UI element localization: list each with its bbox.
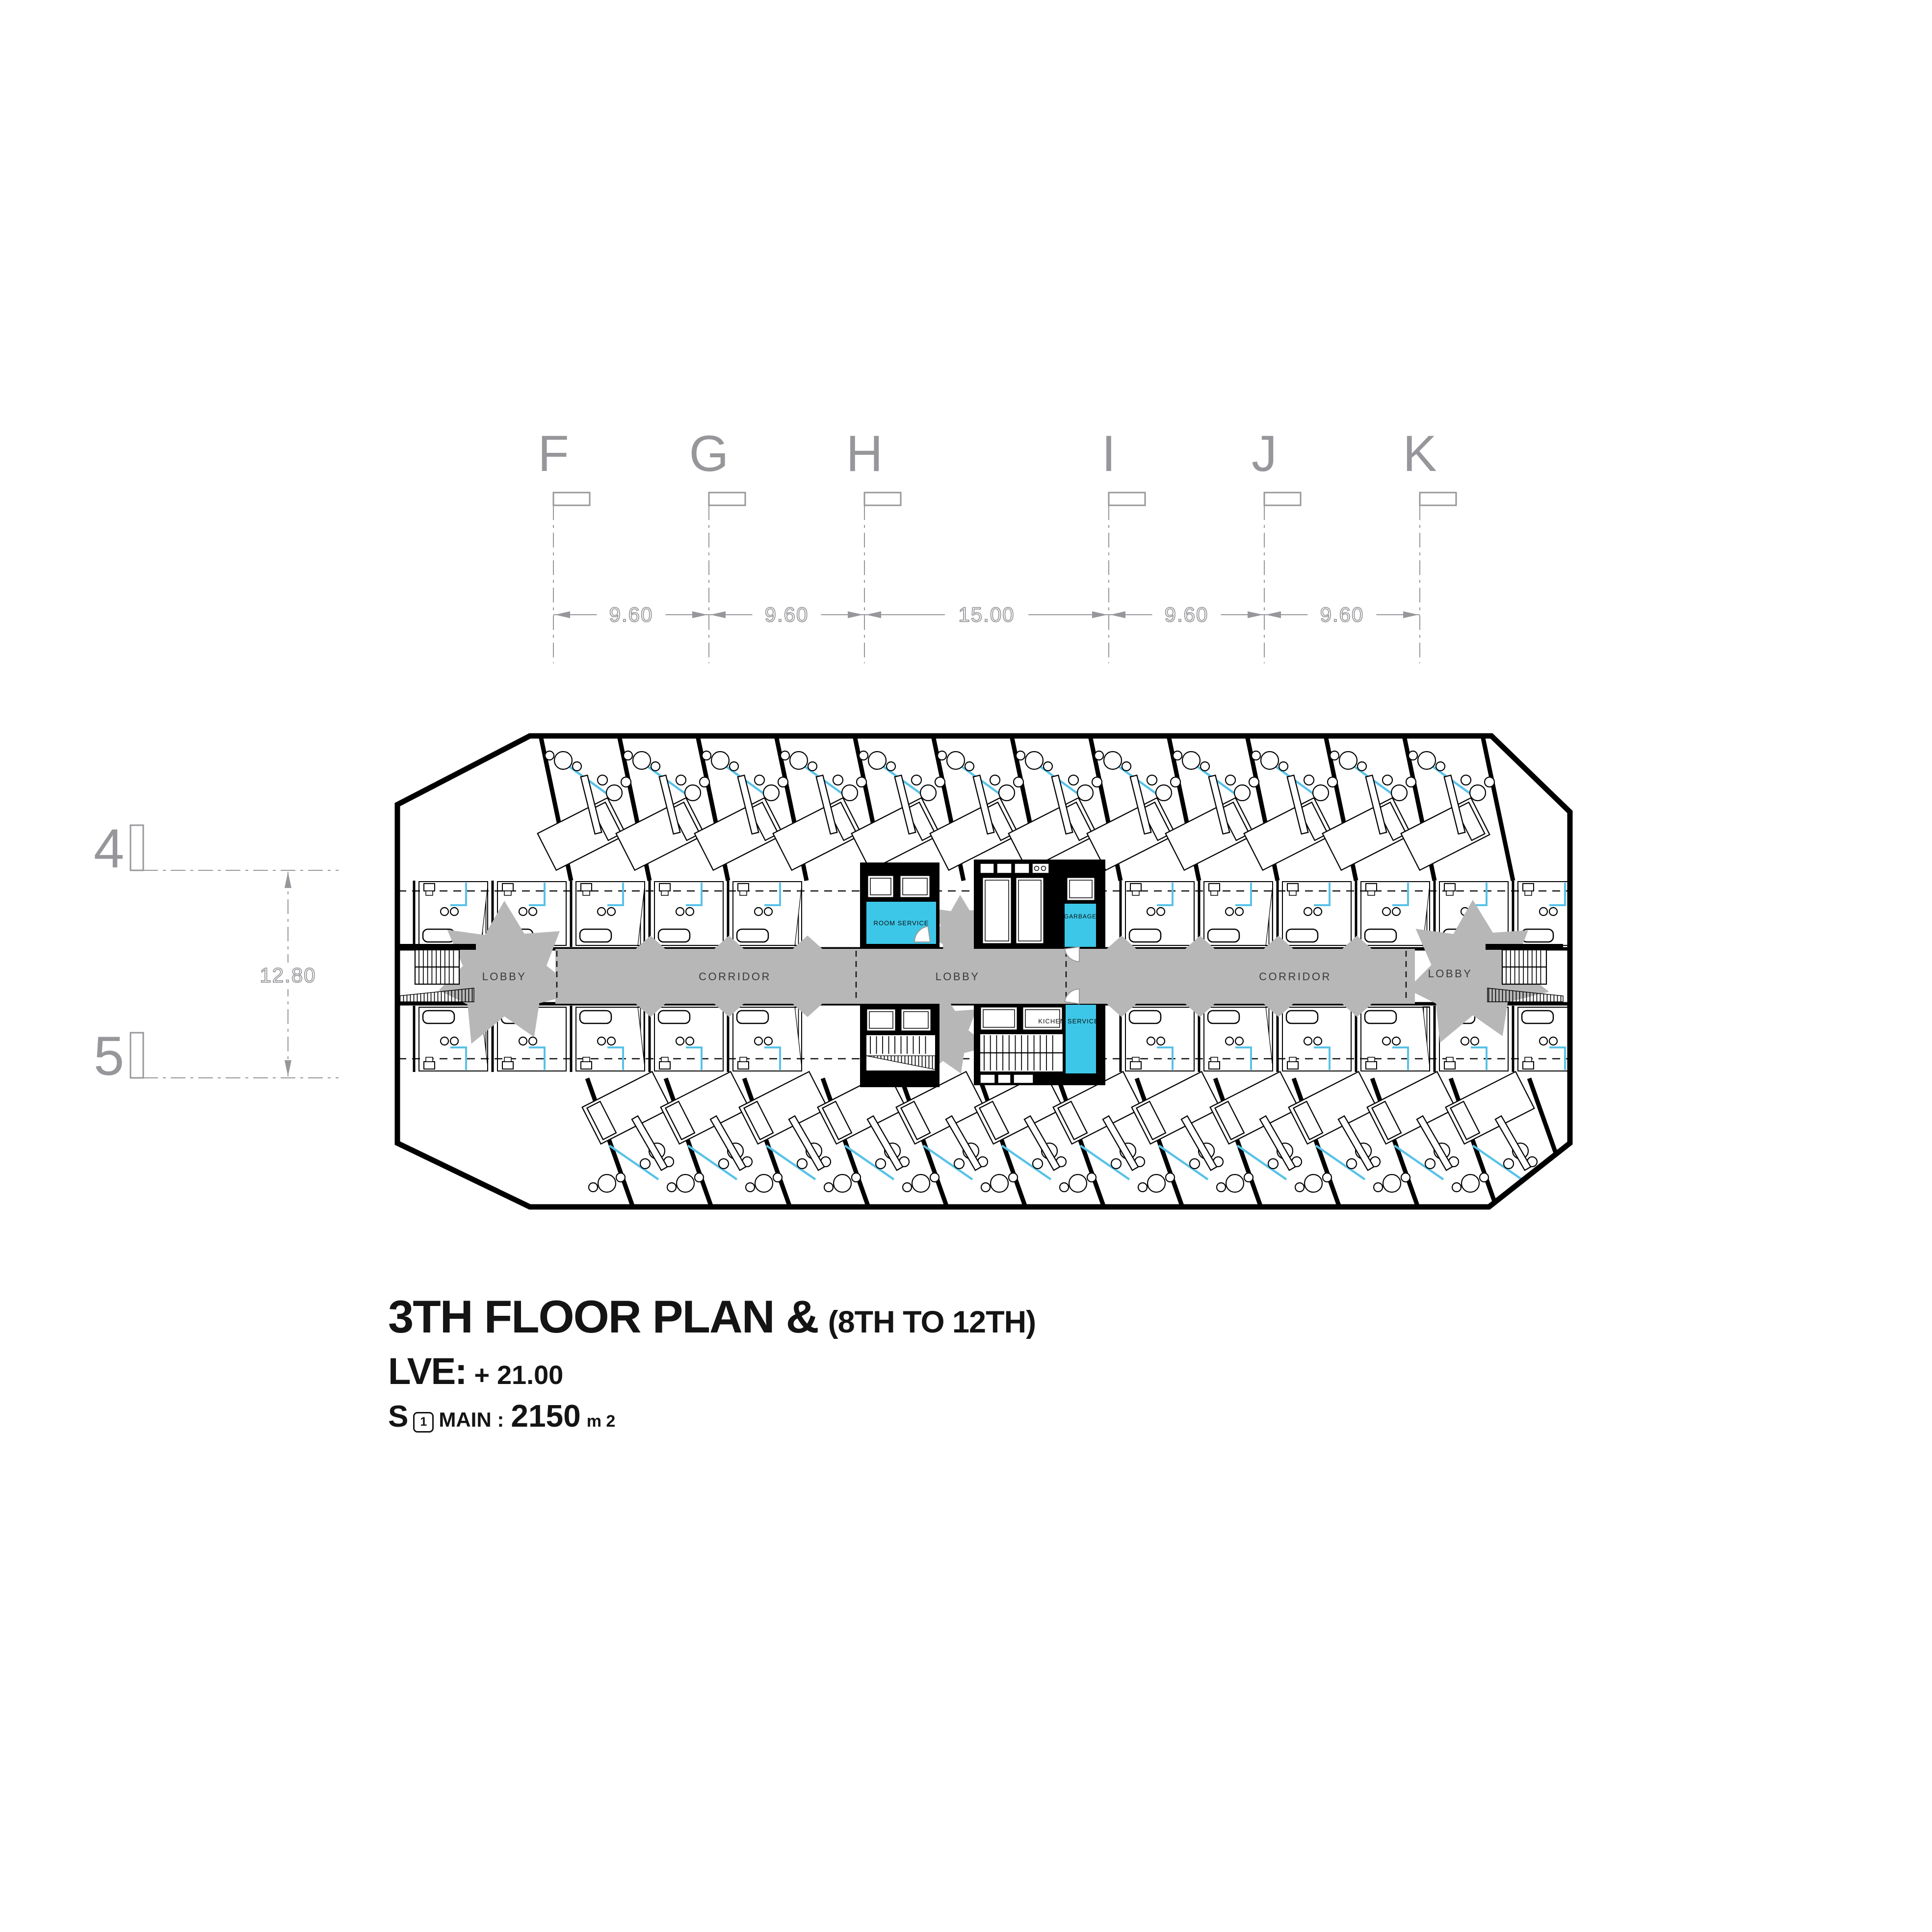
dimension-arrow	[1266, 611, 1281, 618]
sink	[1540, 1037, 1547, 1045]
bathroom-pod	[1199, 881, 1273, 947]
guest-room	[1323, 751, 1416, 870]
chair	[778, 777, 788, 787]
grid-column-letter-G: G	[689, 425, 729, 482]
table	[868, 752, 886, 769]
sink	[1314, 1037, 1322, 1045]
toilet	[1130, 884, 1141, 891]
chair	[1452, 1183, 1461, 1192]
toilet	[1444, 1062, 1455, 1069]
bed	[1367, 1071, 1456, 1144]
counter	[1015, 863, 1029, 873]
chair	[1033, 1159, 1043, 1169]
toilet-seat	[1525, 1057, 1532, 1062]
sink	[1461, 1037, 1469, 1045]
chair	[903, 1183, 912, 1192]
toilet-seat	[504, 1057, 511, 1062]
guest-room	[975, 1071, 1066, 1192]
floor-plan-sheet: FGHIJK9.609.6015.009.609.604512.80LOBBYC…	[0, 0, 1932, 1932]
toilet-seat	[1368, 891, 1375, 895]
bed	[1323, 798, 1411, 870]
table	[1226, 1175, 1244, 1192]
bathtub	[1286, 929, 1318, 942]
bed	[1009, 798, 1097, 870]
chair	[1016, 751, 1025, 760]
table	[1305, 1175, 1322, 1192]
elevator-cell	[866, 1009, 896, 1031]
bathroom-pod	[650, 1006, 723, 1072]
sink	[1304, 908, 1312, 915]
chair	[1268, 1159, 1278, 1169]
guest-room	[1132, 1071, 1223, 1192]
guest-room	[1053, 1071, 1145, 1192]
elevator-cell	[982, 877, 1012, 944]
dimension-arrow	[1110, 611, 1125, 618]
chair	[685, 785, 701, 801]
grid-column-flag	[553, 493, 590, 505]
chair	[1166, 1173, 1175, 1182]
counter	[980, 1074, 995, 1083]
dimension-arrow	[1248, 611, 1263, 618]
chair	[1244, 1173, 1253, 1182]
guest-room	[739, 1071, 831, 1192]
chair	[1156, 785, 1172, 801]
shaft-hatch	[1266, 886, 1273, 946]
bed	[1132, 1071, 1221, 1144]
sink	[450, 908, 458, 915]
toilet	[1209, 884, 1220, 891]
toilet-seat	[583, 1057, 590, 1062]
bathtub	[1208, 929, 1239, 942]
chair	[773, 1173, 782, 1182]
bed	[582, 1071, 671, 1144]
sink	[598, 908, 605, 915]
chair	[808, 762, 817, 771]
chair	[1226, 775, 1235, 785]
dimension-arrow	[285, 872, 291, 888]
shower-partition	[1549, 883, 1565, 905]
chair	[1138, 1183, 1147, 1192]
toilet	[738, 1062, 749, 1069]
chair	[1087, 1173, 1096, 1182]
chair	[1069, 775, 1078, 785]
toilet-seat	[1289, 891, 1296, 895]
chair	[1044, 762, 1052, 771]
chair	[930, 1173, 939, 1182]
guest-room	[1166, 751, 1259, 870]
garbage-room	[1065, 904, 1096, 947]
table	[1069, 1175, 1087, 1192]
chair	[1249, 777, 1259, 787]
area-line: S 1 MAIN : 2150 m 2	[388, 1398, 1036, 1434]
table	[1148, 1175, 1165, 1192]
chair	[1217, 1183, 1226, 1192]
chair	[573, 762, 581, 771]
chair	[1014, 777, 1023, 787]
chair	[1009, 1173, 1018, 1182]
toilet	[1209, 1062, 1220, 1069]
toilet	[1444, 884, 1455, 891]
guest-room	[616, 751, 709, 870]
grid-column-flag	[1420, 493, 1456, 505]
chair	[859, 751, 868, 760]
toilet-seat	[1132, 1057, 1139, 1062]
sink	[1383, 908, 1390, 915]
sink	[519, 908, 527, 915]
area-index-box: 1	[413, 1412, 434, 1433]
shaft-hatch	[638, 886, 645, 946]
title-suffix: (8TH TO 12TH)	[828, 1305, 1036, 1340]
chair	[598, 775, 607, 785]
chair	[746, 1183, 755, 1192]
sink	[1392, 1037, 1400, 1045]
grid-column-flag	[709, 493, 745, 505]
sink	[607, 1037, 615, 1045]
bed	[739, 1071, 828, 1144]
toilet-seat	[1211, 1057, 1218, 1062]
bathroom-pod	[1121, 1006, 1194, 1072]
chair	[999, 785, 1015, 801]
elevator-cell	[900, 875, 930, 898]
chair	[1358, 762, 1366, 771]
toilet	[1523, 884, 1534, 891]
guest-room	[1401, 751, 1494, 870]
label-corridor-left: CORRIDOR	[699, 970, 771, 983]
chair	[1095, 751, 1103, 760]
guest-room	[1009, 751, 1102, 870]
sink	[676, 1037, 684, 1045]
bed	[773, 798, 862, 870]
chair	[1122, 762, 1131, 771]
chair	[912, 775, 921, 785]
chair	[640, 1159, 650, 1169]
chair	[755, 775, 764, 785]
sheet-title: 3TH FLOOR PLAN & (8TH TO 12TH)	[388, 1290, 1036, 1343]
grid-column-letter-H: H	[846, 425, 883, 482]
sink	[1226, 1037, 1233, 1045]
sink	[1471, 1037, 1479, 1045]
chair	[1313, 785, 1329, 801]
table	[1383, 1175, 1401, 1192]
guest-room	[852, 751, 945, 870]
chair	[1111, 1159, 1121, 1169]
chair	[852, 1173, 861, 1182]
shaft-hatch	[1423, 1007, 1430, 1067]
chair	[695, 1173, 704, 1182]
guest-room	[1087, 751, 1180, 870]
bed	[616, 798, 705, 870]
dimension-text: 9.60	[1165, 603, 1209, 626]
level-line: LVE: + 21.00	[388, 1350, 1036, 1393]
guest-room	[582, 1071, 674, 1192]
bathroom-pod	[728, 1006, 802, 1072]
chair	[1279, 762, 1288, 771]
sink	[755, 908, 762, 915]
shower-partition	[764, 883, 780, 905]
toilet-seat	[1132, 891, 1139, 895]
table	[912, 1175, 930, 1192]
chair	[1234, 785, 1250, 801]
title-main: 3TH FLOOR PLAN &	[388, 1290, 818, 1343]
table	[1182, 752, 1200, 769]
chair	[1436, 762, 1445, 771]
toilet	[659, 1062, 670, 1069]
label-garbage: GARBAGE	[1064, 913, 1097, 920]
dimension-text: 9.60	[609, 603, 653, 626]
elevator-cell	[1067, 877, 1095, 901]
chair	[1173, 751, 1182, 760]
chair	[1406, 777, 1416, 787]
sink	[764, 1037, 772, 1045]
dimension-arrow	[1403, 611, 1418, 618]
chair	[920, 785, 936, 801]
level-label: LVE:	[388, 1350, 466, 1393]
bathroom-pod	[571, 1006, 645, 1072]
shower-partition	[450, 883, 466, 905]
grid-column-letter-J: J	[1252, 425, 1277, 482]
chair	[651, 762, 660, 771]
shaft-hatch	[1580, 1007, 1587, 1067]
chair	[1190, 1159, 1200, 1169]
elevator-cell	[980, 1007, 1018, 1030]
bed	[695, 798, 783, 870]
shower-partition	[607, 883, 623, 905]
guest-room	[1210, 1071, 1302, 1192]
grid-column-flag	[1264, 493, 1301, 505]
chair	[1504, 1159, 1514, 1169]
chair	[938, 751, 946, 760]
chair	[1330, 751, 1339, 760]
chair	[1374, 1183, 1383, 1192]
shower-partition	[529, 883, 545, 905]
dimension-arrow	[285, 1060, 291, 1076]
bathtub	[580, 1011, 611, 1023]
chair	[1328, 777, 1337, 787]
bed	[930, 798, 1019, 870]
chair	[1391, 785, 1407, 801]
toilet	[502, 884, 513, 891]
room-wall	[1483, 736, 1513, 881]
kichen-service-room	[1066, 1005, 1096, 1073]
table	[790, 752, 808, 769]
chair	[887, 762, 895, 771]
grid-column-letter-F: F	[538, 425, 569, 482]
toilet-seat	[661, 891, 668, 895]
chair	[1401, 1173, 1410, 1182]
sink	[607, 908, 615, 915]
chair	[1347, 1159, 1357, 1169]
counter	[997, 863, 1012, 873]
shower-partition	[1392, 883, 1408, 905]
chair	[763, 785, 779, 801]
chair	[730, 762, 738, 771]
guest-room	[1446, 1071, 1537, 1192]
chair	[857, 777, 866, 787]
sink	[1157, 1037, 1165, 1045]
table	[677, 1175, 694, 1192]
toilet-seat	[426, 891, 433, 895]
grid-row-number-5: 5	[94, 1025, 124, 1087]
area-value: 2150	[511, 1398, 580, 1434]
elevator-cell	[901, 1009, 931, 1031]
table	[711, 752, 729, 769]
table	[1462, 1175, 1479, 1192]
bed	[1166, 798, 1254, 870]
sink	[1147, 1037, 1155, 1045]
table	[834, 1175, 851, 1192]
chair	[1461, 775, 1471, 785]
shower-partition	[1235, 883, 1251, 905]
sink	[519, 1037, 527, 1045]
toilet	[1130, 1062, 1141, 1069]
chair	[1470, 785, 1486, 801]
sink	[1304, 1037, 1312, 1045]
chair	[1077, 785, 1093, 801]
toilet	[659, 884, 670, 891]
sink	[1157, 908, 1165, 915]
dimension-text: 9.60	[765, 603, 809, 626]
sink	[1314, 908, 1322, 915]
chair	[1409, 751, 1417, 760]
bed	[1401, 798, 1490, 870]
chair	[981, 1183, 990, 1192]
guest-room	[538, 751, 631, 870]
sink	[1540, 908, 1547, 915]
bathtub	[737, 1011, 768, 1023]
table	[1418, 752, 1436, 769]
sink	[764, 908, 772, 915]
label-lobby-center: LOBBY	[936, 970, 980, 983]
label-room-service: ROOM SERVICE	[874, 919, 929, 927]
toilet-seat	[426, 1057, 433, 1062]
dimension-arrow	[692, 611, 707, 618]
floor-plan-drawing: FGHIJK9.609.6015.009.609.604512.80LOBBYC…	[0, 0, 1932, 1932]
shower-partition	[1314, 883, 1330, 905]
grid-column-letter-K: K	[1403, 425, 1436, 482]
bathroom-pod	[1199, 1006, 1273, 1072]
toilet-seat	[583, 891, 590, 895]
area-label: MAIN :	[439, 1408, 504, 1432]
bathtub	[1129, 929, 1161, 942]
sink	[441, 908, 448, 915]
bathtub	[737, 929, 768, 942]
counter	[980, 863, 994, 873]
table	[991, 1175, 1008, 1192]
guest-room	[1367, 1071, 1459, 1192]
label-lobby-right: LOBBY	[1428, 967, 1473, 980]
bathtub	[1365, 929, 1396, 942]
shaft-hatch	[795, 886, 802, 946]
toilet	[1287, 884, 1298, 891]
grid-row-flag	[131, 825, 143, 870]
toilet	[1366, 1062, 1377, 1069]
sink	[1383, 1037, 1390, 1045]
chair	[1323, 1173, 1332, 1182]
chair	[781, 751, 789, 760]
grid-column-flag	[1109, 493, 1145, 505]
toilet	[581, 884, 592, 891]
toilet-seat	[1525, 891, 1532, 895]
sink	[686, 908, 694, 915]
bathroom-pod	[1513, 1006, 1587, 1072]
dimension-arrow	[1092, 611, 1107, 618]
toilet-seat	[740, 891, 747, 895]
bed	[1087, 798, 1176, 870]
counter	[998, 1074, 1011, 1083]
dimension-arrow	[710, 611, 726, 618]
bed	[1244, 798, 1333, 870]
sink	[450, 1037, 458, 1045]
shaft-hatch	[1580, 886, 1587, 946]
chair	[954, 1159, 964, 1169]
bed	[1446, 1071, 1535, 1144]
chair	[1171, 777, 1180, 787]
toilet-seat	[1211, 891, 1218, 895]
chair	[1485, 777, 1494, 787]
bathtub	[1286, 1011, 1318, 1023]
ramp-hatch	[398, 988, 474, 1002]
table	[755, 1175, 773, 1192]
shaft-hatch	[795, 1007, 802, 1067]
toilet	[1523, 1062, 1534, 1069]
sink	[529, 908, 537, 915]
chair	[589, 1183, 598, 1192]
table	[554, 752, 572, 769]
toilet	[1287, 1062, 1298, 1069]
bed	[538, 798, 627, 870]
toilet-seat	[1446, 1057, 1453, 1062]
chair	[545, 751, 554, 760]
toilet-seat	[740, 1057, 747, 1062]
stair-wall	[1486, 944, 1563, 950]
dimension-arrow	[866, 611, 881, 618]
chair	[624, 751, 632, 760]
bathtub	[1365, 1011, 1396, 1023]
chair	[1252, 751, 1260, 760]
sink	[676, 908, 684, 915]
chair	[676, 775, 686, 785]
guest-room	[695, 751, 788, 870]
bed	[661, 1071, 750, 1144]
table	[633, 752, 651, 769]
dimension-arrow	[555, 611, 570, 618]
shower-partition	[686, 883, 702, 905]
dimension-text: 9.60	[1320, 603, 1364, 626]
chair	[1480, 1173, 1488, 1182]
guest-room	[1244, 751, 1337, 870]
table	[1025, 752, 1043, 769]
guest-room	[1289, 1071, 1380, 1192]
sink	[598, 1037, 605, 1045]
grid-row-number-4: 4	[94, 818, 124, 879]
chair	[1383, 775, 1392, 785]
toilet-seat	[661, 1057, 668, 1062]
chair	[700, 777, 709, 787]
bed	[1210, 1071, 1299, 1144]
chair	[1147, 775, 1157, 785]
elevator-cell	[1016, 877, 1044, 944]
bathtub	[423, 1011, 454, 1023]
bathroom-pod	[1356, 1006, 1430, 1072]
chair	[935, 777, 945, 787]
sink	[1549, 1037, 1557, 1045]
bed	[1289, 1071, 1378, 1144]
table	[598, 1175, 616, 1192]
bathroom-pod	[1278, 1006, 1351, 1072]
bathtub	[658, 929, 690, 942]
toilet	[424, 884, 435, 891]
dimension-arrow	[848, 611, 863, 618]
